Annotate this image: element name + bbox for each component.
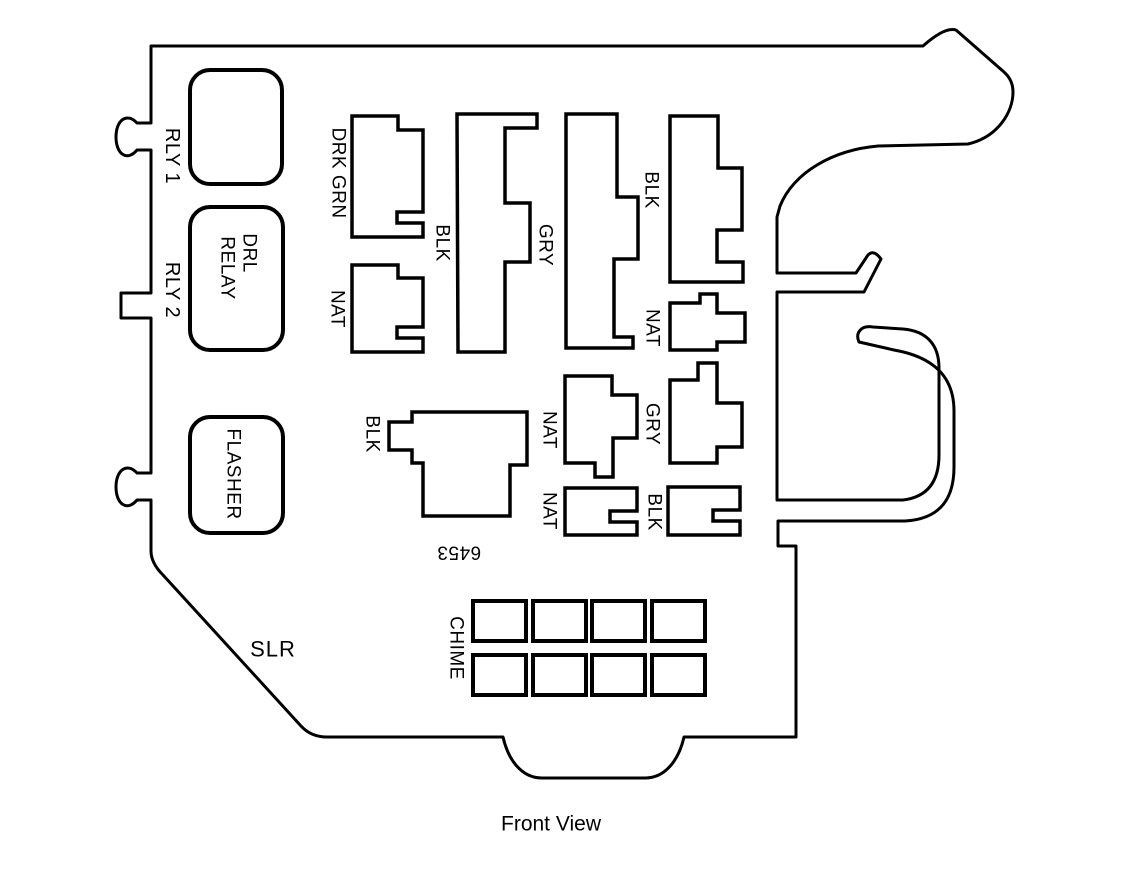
fusebox-diagram: RLY 1 RLY 2 DRL RELAY FLASHER DRK GRN NA… xyxy=(0,0,1133,867)
label-drk-grn: DRK GRN xyxy=(328,127,349,218)
label-flasher: FLASHER xyxy=(223,428,244,519)
connector-nat-left xyxy=(352,265,423,352)
label-drl: DRL xyxy=(239,233,260,273)
label-blk-tall: BLK xyxy=(432,224,453,261)
connector-gry-tall xyxy=(566,114,638,348)
label-slr: SLR xyxy=(250,637,296,662)
connector-gry-mid xyxy=(670,363,742,463)
connector-nat-mid xyxy=(565,376,637,477)
fusebox-front-view-page: RLY 1 RLY 2 DRL RELAY FLASHER DRK GRN NA… xyxy=(0,0,1133,867)
chime-cell xyxy=(652,655,705,695)
chime-cell xyxy=(473,601,526,641)
connector-drk-grn xyxy=(352,116,423,237)
chime-cell xyxy=(473,655,526,695)
label-gry-tall: GRY xyxy=(535,224,556,266)
connector-nat-right xyxy=(670,294,745,350)
connector-blk-low xyxy=(668,487,740,535)
connector-blk-main-6453 xyxy=(389,412,527,516)
label-nat-mid: NAT xyxy=(539,411,560,449)
connector-blk-right xyxy=(670,116,743,282)
chime-cell xyxy=(533,655,586,695)
relay-socket-rly1 xyxy=(190,70,282,184)
label-nat-low: NAT xyxy=(539,492,560,530)
label-nat-left: NAT xyxy=(327,290,348,328)
label-blk-low: BLK xyxy=(644,493,665,530)
label-rly1: RLY 1 xyxy=(161,128,183,184)
label-nat-right: NAT xyxy=(642,309,663,347)
label-part-number-6453: 6453 xyxy=(437,542,481,563)
chime-cell xyxy=(652,601,705,641)
label-relay: RELAY xyxy=(217,236,238,299)
chime-cell xyxy=(592,601,645,641)
connector-blk-tall xyxy=(457,114,537,352)
chime-grid xyxy=(473,601,705,695)
chime-cell xyxy=(592,655,645,695)
label-blk-right: BLK xyxy=(641,171,662,208)
connector-nat-low xyxy=(565,488,637,535)
label-blk-main: BLK xyxy=(362,415,383,452)
label-rly2: RLY 2 xyxy=(161,262,183,318)
chime-cell xyxy=(533,601,586,641)
label-chime: CHIME xyxy=(446,616,467,680)
label-gry-mid: GRY xyxy=(642,403,663,445)
caption-front-view: Front View xyxy=(501,813,602,836)
